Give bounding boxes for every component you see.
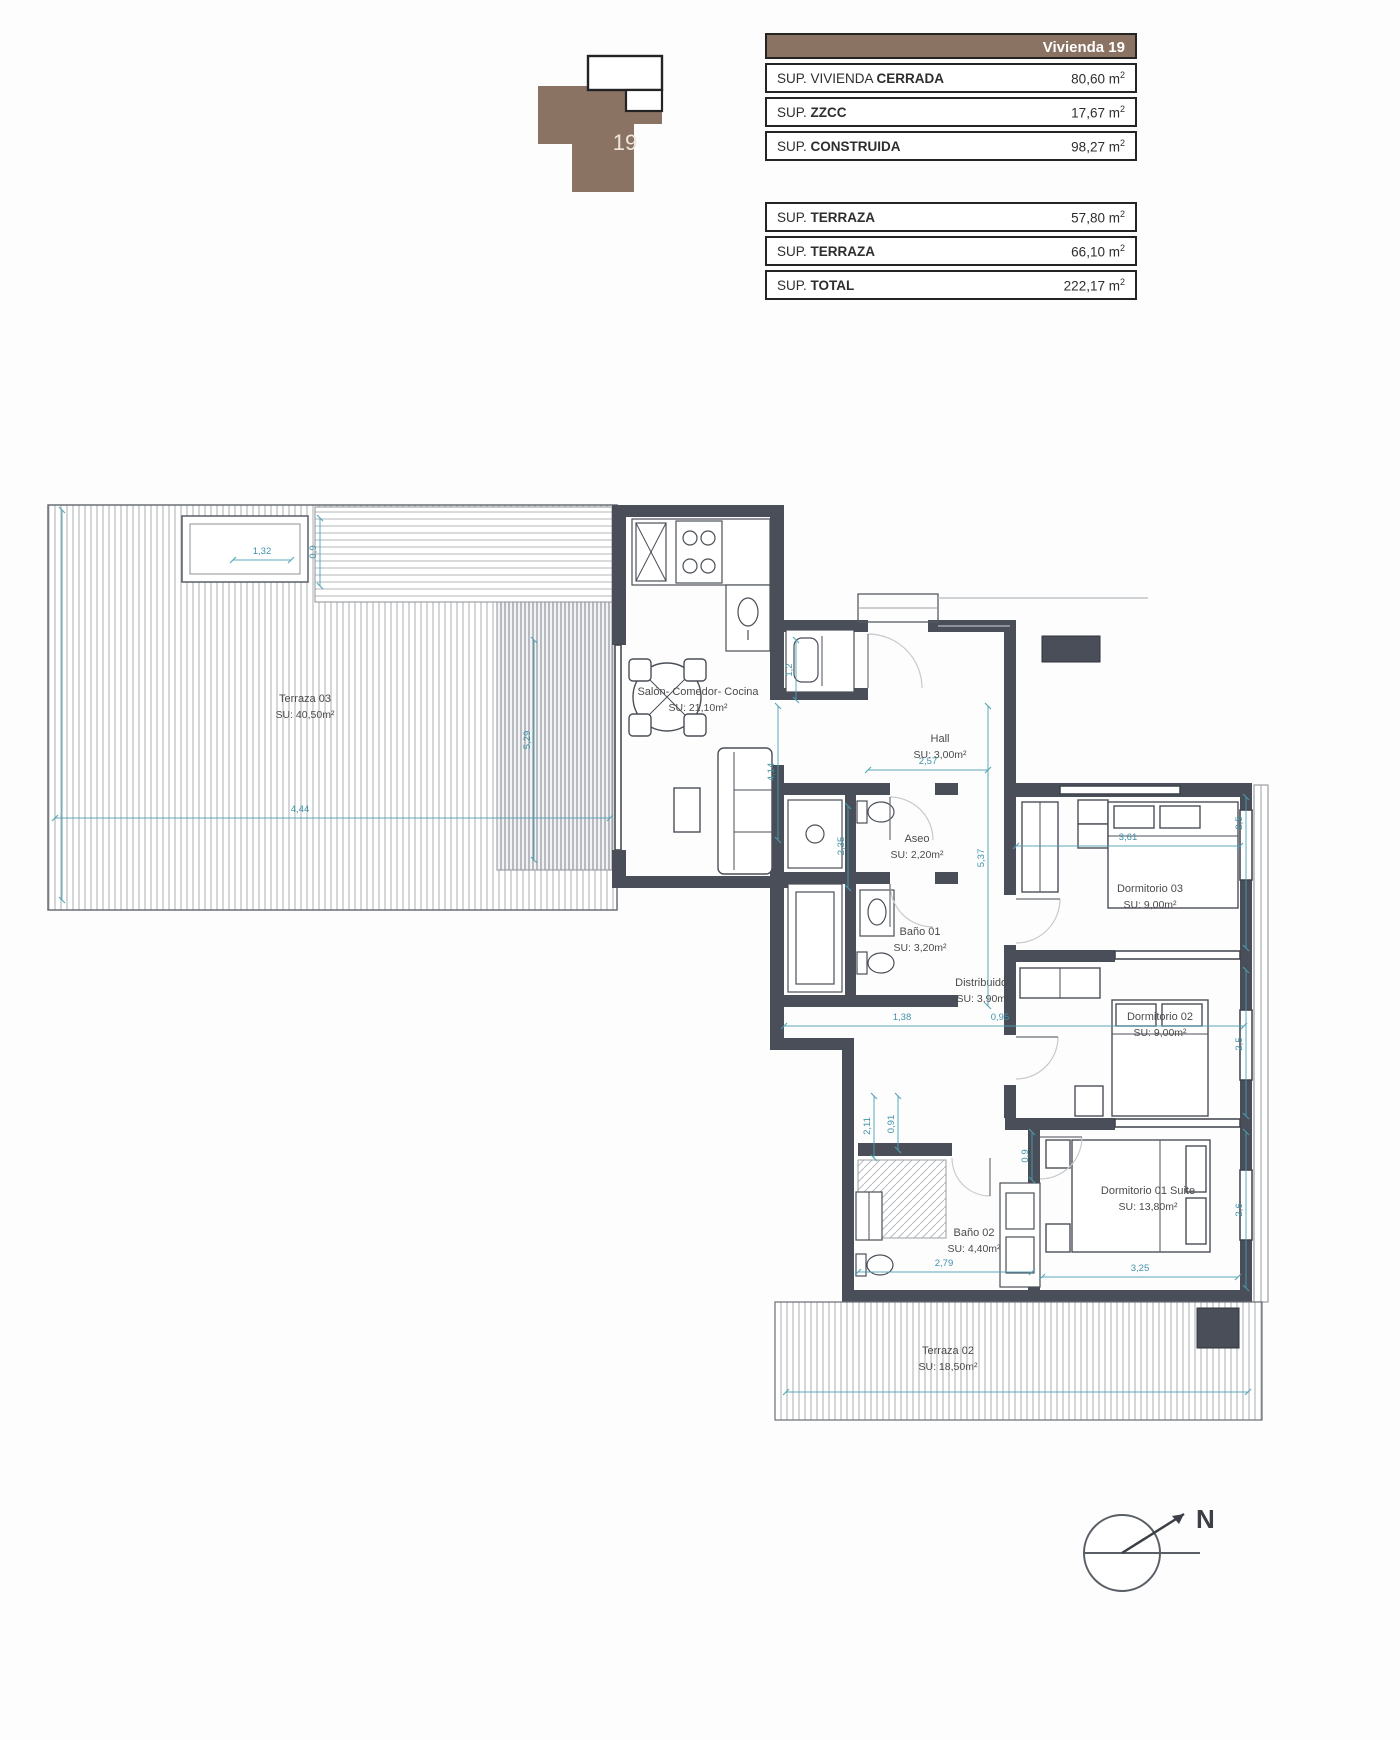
dimension-label: 2,6 [1234, 1203, 1245, 1216]
bedroom-03: Dormitorio 03 SU: 9,00m² [1022, 800, 1238, 911]
dimension-label: 2,5 [1234, 816, 1245, 829]
dimension-label: 3,61 [1119, 832, 1138, 843]
bedroom-02: Dormitorio 02 SU: 9,00m² [1020, 968, 1208, 1116]
room-label: Baño 01 [900, 926, 941, 938]
dimension-label: 2,57 [919, 756, 938, 767]
room-area-label: SU: 3,90m² [956, 993, 1010, 1005]
room-area-label: SU: 3,20m² [893, 942, 947, 954]
wardrobe-icon [1022, 802, 1058, 892]
dimension-label: 2,35 [836, 837, 847, 856]
floor-plan-drawing: Terraza 03 SU: 40,50m² [0, 0, 1400, 1740]
sink-icon [726, 585, 770, 651]
bathroom-01: Baño 01 SU: 3,20m² [788, 884, 947, 992]
room-area-label: SU: 2,20m² [890, 849, 944, 861]
room-label: Distribuidor [955, 977, 1011, 989]
north-compass: N [1084, 1504, 1215, 1591]
dimension-label: 2,5 [1234, 1037, 1245, 1050]
terrace-02: Terraza 02 SU: 18,50m² [775, 1302, 1262, 1420]
bedroom-01-suite: Dormitorio 01 Suite SU: 13,80m² [1040, 1137, 1210, 1252]
dimension-label: 1,2 [784, 663, 795, 676]
dimension-label: 5,29 [522, 731, 533, 750]
room-label: Terraza 02 [922, 1345, 974, 1357]
room-label: Salón- Comedor- Cocina [637, 686, 759, 698]
room-area-label: SU: 13,80m² [1119, 1201, 1178, 1213]
nightstand-icon [1075, 1086, 1103, 1116]
dimension-label: 1,38 [893, 1012, 912, 1023]
dimension-label: 2,79 [935, 1258, 954, 1269]
deck-equipment-box [1197, 1308, 1239, 1348]
ac-unit [1042, 636, 1100, 662]
room-label: Dormitorio 02 [1127, 1011, 1193, 1023]
dimension-label: 0,91 [886, 1115, 897, 1134]
nightstand-icon [1046, 1224, 1070, 1252]
floorplan-sheet: 19 Vivienda 19 SUP. VIVIENDA CERRADA 80,… [0, 0, 1400, 1740]
room-area-label: SU: 9,00m² [1123, 899, 1177, 911]
room-area-label: SU: 40,50m² [276, 709, 335, 721]
room-label: Baño 02 [954, 1227, 995, 1239]
dimension-label: 4,14 [766, 763, 777, 782]
dimension-label: 0,9 [1020, 1149, 1031, 1162]
cooktop-icon [676, 521, 722, 583]
dimension-label: 3,25 [1131, 1263, 1150, 1274]
dimension-label: 1,32 [253, 546, 272, 557]
living-kitchen: Salón- Comedor- Cocina SU: 21,10m² [629, 519, 772, 874]
toilet-icon [856, 1254, 893, 1276]
room-area-label: SU: 18,50m² [919, 1361, 978, 1373]
room-label: Terraza 03 [279, 693, 331, 705]
room-area-label: SU: 9,00m² [1133, 1027, 1187, 1039]
room-label: Hall [931, 733, 950, 745]
sofa-icon [674, 748, 772, 874]
toilet-icon [857, 801, 894, 823]
room-label: Aseo [904, 833, 929, 845]
room-area-label: SU: 21,10m² [669, 702, 728, 714]
north-label: N [1196, 1504, 1215, 1534]
terrace-03: Terraza 03 SU: 40,50m² [48, 505, 617, 910]
dimension-label: 5,37 [976, 849, 987, 868]
dimension-label: 4,44 [291, 804, 310, 815]
nightstand-icon [1046, 1140, 1070, 1168]
toilet-icon [857, 952, 894, 974]
dimension-label: 2,11 [862, 1117, 873, 1135]
room-label: Dormitorio 01 Suite [1101, 1185, 1195, 1197]
planter-box [182, 516, 308, 582]
room-area-label: SU: 4,40m² [947, 1243, 1001, 1255]
double-vanity-icon [1000, 1183, 1040, 1287]
shower-icon [856, 1192, 882, 1240]
room-label: Dormitorio 03 [1117, 883, 1183, 895]
dimension-label: 0,95 [991, 1012, 1010, 1023]
shower-icon [788, 884, 842, 992]
dimension-label: 0,9 [308, 545, 319, 558]
aseo-wc: Aseo SU: 2,20m² [788, 797, 944, 868]
